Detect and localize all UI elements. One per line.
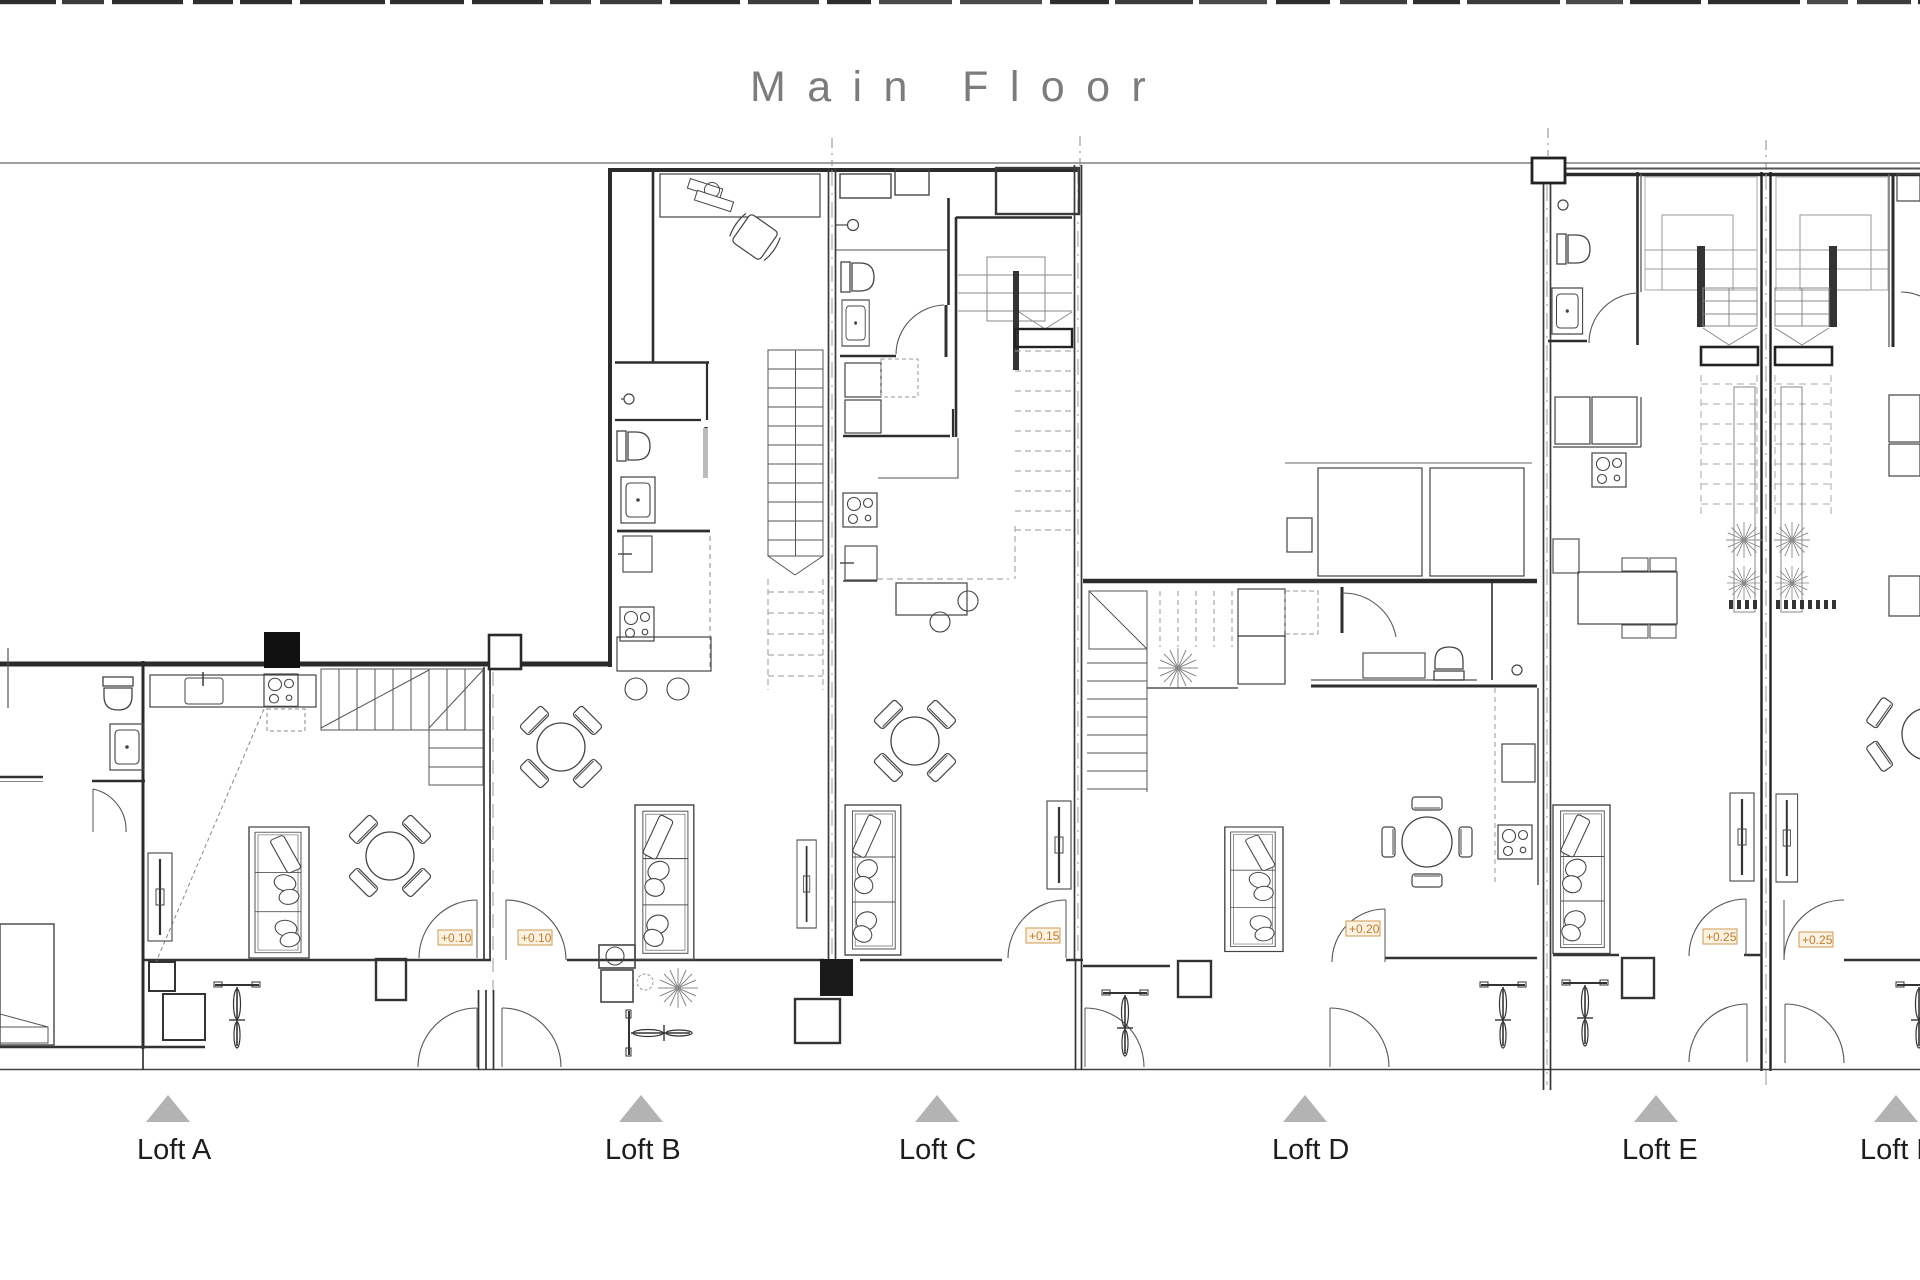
svg-text:Loft B: Loft B — [605, 1134, 681, 1166]
svg-text:+0.10: +0.10 — [521, 931, 552, 945]
svg-text:+0.25: +0.25 — [1802, 933, 1833, 947]
svg-text:Loft F: Loft F — [1860, 1134, 1920, 1166]
svg-text:Loft D: Loft D — [1272, 1134, 1349, 1166]
svg-text:+0.25: +0.25 — [1706, 930, 1737, 944]
svg-text:+0.10: +0.10 — [441, 931, 472, 945]
svg-text:Main Floor: Main Floor — [750, 63, 1167, 111]
svg-text:+0.15: +0.15 — [1029, 929, 1060, 943]
svg-text:+0.20: +0.20 — [1349, 922, 1380, 936]
svg-text:Loft E: Loft E — [1622, 1134, 1698, 1166]
svg-text:Loft A: Loft A — [137, 1134, 212, 1166]
svg-text:Loft C: Loft C — [899, 1134, 976, 1166]
